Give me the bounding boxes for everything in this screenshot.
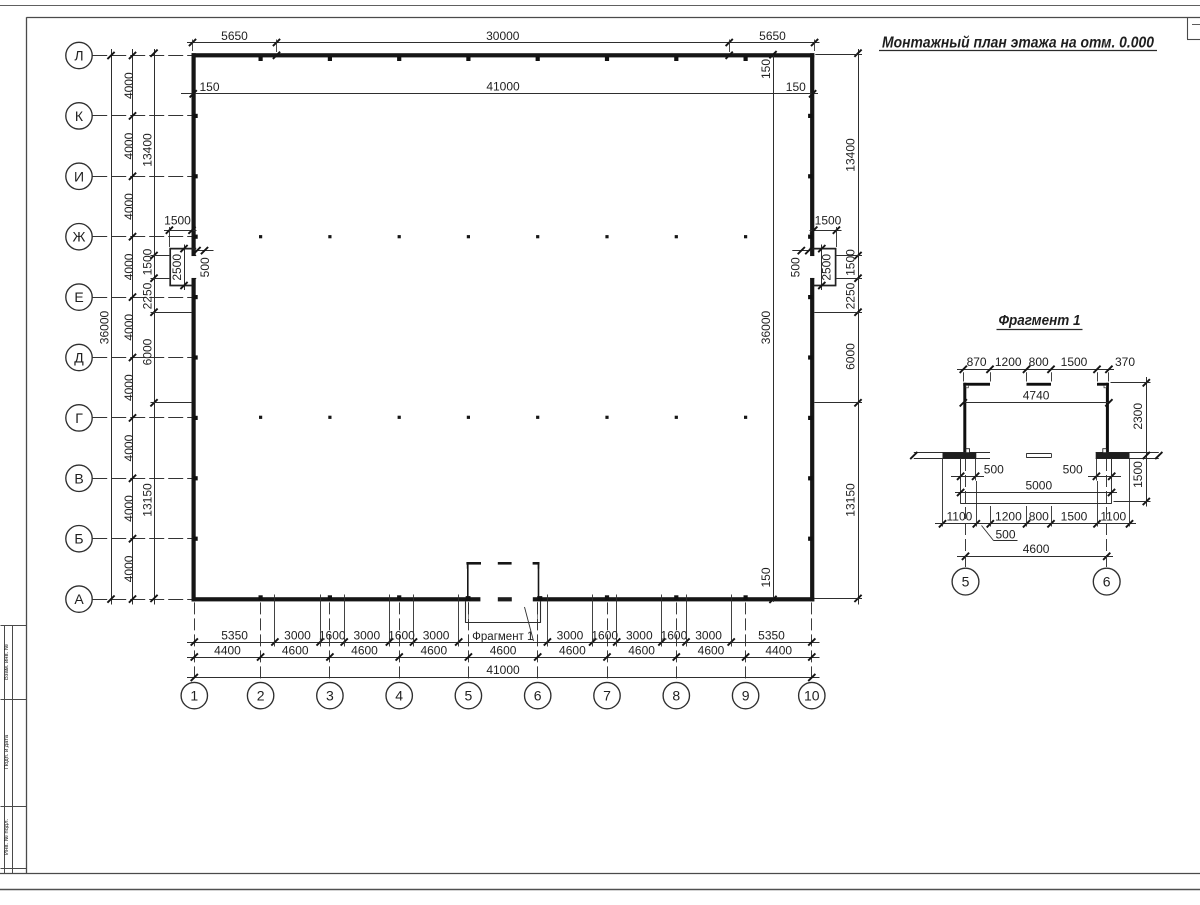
- svg-text:Фрагмент 1: Фрагмент 1: [999, 313, 1081, 329]
- svg-text:3: 3: [326, 688, 334, 704]
- svg-text:8: 8: [672, 688, 680, 704]
- svg-text:5000: 5000: [1025, 478, 1052, 492]
- svg-text:1500: 1500: [1061, 510, 1088, 524]
- svg-text:5650: 5650: [759, 29, 786, 43]
- svg-text:6: 6: [534, 688, 542, 704]
- svg-text:500: 500: [789, 257, 803, 277]
- svg-text:4600: 4600: [282, 643, 309, 657]
- svg-text:1500: 1500: [1131, 461, 1145, 488]
- svg-text:500: 500: [198, 257, 212, 277]
- svg-text:4400: 4400: [214, 643, 241, 657]
- svg-text:41000: 41000: [486, 80, 520, 94]
- svg-text:30000: 30000: [486, 29, 520, 43]
- svg-text:4600: 4600: [559, 643, 586, 657]
- svg-text:150: 150: [759, 59, 773, 79]
- svg-text:3000: 3000: [557, 628, 584, 642]
- svg-text:4600: 4600: [351, 643, 378, 657]
- svg-text:4000: 4000: [122, 132, 136, 159]
- svg-text:5: 5: [465, 688, 473, 704]
- svg-text:1: 1: [190, 688, 198, 704]
- svg-text:1100: 1100: [946, 510, 972, 524]
- svg-text:Е: Е: [74, 289, 83, 305]
- svg-text:150: 150: [759, 567, 773, 587]
- svg-text:Инв. № подл.: Инв. № подл.: [4, 819, 10, 855]
- svg-text:1200: 1200: [995, 355, 1022, 369]
- svg-text:2300: 2300: [1131, 403, 1145, 430]
- svg-text:1500: 1500: [1061, 355, 1088, 369]
- svg-text:1500: 1500: [141, 248, 155, 275]
- svg-text:К: К: [75, 108, 84, 124]
- svg-text:4600: 4600: [628, 643, 655, 657]
- svg-text:870: 870: [967, 355, 987, 369]
- svg-text:800: 800: [1029, 355, 1049, 369]
- svg-text:13150: 13150: [844, 483, 858, 517]
- svg-text:1200: 1200: [995, 510, 1022, 524]
- svg-text:4000: 4000: [122, 193, 136, 220]
- svg-text:4400: 4400: [765, 643, 792, 657]
- svg-text:Подп. и дата: Подп. и дата: [4, 734, 10, 769]
- svg-text:13400: 13400: [141, 133, 155, 167]
- svg-text:Л: Л: [74, 48, 83, 64]
- svg-text:800: 800: [1029, 510, 1049, 524]
- svg-text:3000: 3000: [695, 628, 722, 642]
- svg-text:4600: 4600: [698, 643, 725, 657]
- svg-text:4600: 4600: [1023, 542, 1050, 556]
- svg-text:Д: Д: [74, 350, 84, 366]
- svg-text:Монтажный план этажа на отм. 0: Монтажный план этажа на отм. 0.000: [882, 34, 1154, 51]
- svg-text:36000: 36000: [759, 310, 773, 344]
- svg-text:7: 7: [603, 688, 611, 704]
- svg-text:1500: 1500: [164, 214, 191, 228]
- svg-text:4000: 4000: [122, 253, 136, 280]
- svg-text:4000: 4000: [122, 374, 136, 401]
- svg-text:Взам. инв. №: Взам. инв. №: [4, 644, 10, 680]
- svg-text:1100: 1100: [1100, 510, 1126, 524]
- svg-text:4000: 4000: [122, 434, 136, 461]
- svg-text:5: 5: [962, 574, 970, 590]
- svg-text:6000: 6000: [844, 343, 858, 370]
- svg-text:Ж: Ж: [73, 229, 86, 245]
- svg-text:10: 10: [804, 688, 820, 704]
- svg-text:500: 500: [995, 527, 1015, 541]
- svg-text:1600: 1600: [319, 628, 346, 642]
- svg-text:4000: 4000: [122, 314, 136, 341]
- svg-text:4600: 4600: [420, 643, 447, 657]
- svg-text:370: 370: [1115, 355, 1135, 369]
- svg-text:Б: Б: [74, 531, 83, 547]
- svg-text:13150: 13150: [141, 483, 155, 517]
- svg-text:150: 150: [199, 80, 219, 94]
- svg-text:6000: 6000: [141, 338, 155, 365]
- svg-text:2500: 2500: [170, 254, 184, 281]
- svg-text:41000: 41000: [486, 663, 520, 677]
- svg-text:2250: 2250: [141, 282, 155, 309]
- svg-text:2500: 2500: [820, 254, 834, 281]
- svg-text:1600: 1600: [591, 628, 618, 642]
- svg-text:Г: Г: [75, 410, 83, 426]
- svg-text:4600: 4600: [490, 643, 517, 657]
- svg-text:13400: 13400: [844, 138, 858, 172]
- svg-text:4: 4: [395, 688, 403, 704]
- svg-text:5350: 5350: [221, 628, 248, 642]
- svg-text:1500: 1500: [815, 214, 842, 228]
- svg-text:1500: 1500: [844, 249, 858, 276]
- svg-text:4000: 4000: [122, 555, 136, 582]
- svg-text:В: В: [74, 470, 83, 486]
- svg-text:4740: 4740: [1023, 388, 1050, 402]
- svg-text:36000: 36000: [97, 310, 111, 344]
- svg-text:4000: 4000: [122, 495, 136, 522]
- svg-text:5350: 5350: [758, 628, 785, 642]
- svg-text:3000: 3000: [423, 628, 450, 642]
- svg-text:2250: 2250: [844, 282, 858, 309]
- svg-text:4000: 4000: [122, 72, 136, 99]
- svg-text:150: 150: [786, 80, 806, 94]
- svg-text:1600: 1600: [388, 628, 415, 642]
- svg-text:500: 500: [984, 463, 1004, 477]
- svg-text:500: 500: [1063, 463, 1083, 477]
- svg-text:2: 2: [257, 688, 265, 704]
- svg-text:1600: 1600: [661, 628, 688, 642]
- svg-text:6: 6: [1103, 574, 1111, 590]
- svg-text:3000: 3000: [353, 628, 380, 642]
- svg-text:Фрагмент 1: Фрагмент 1: [472, 631, 533, 643]
- svg-text:И: И: [74, 168, 84, 184]
- svg-text:5650: 5650: [221, 29, 248, 43]
- svg-text:А: А: [74, 591, 84, 607]
- svg-text:3000: 3000: [626, 628, 653, 642]
- svg-text:3000: 3000: [284, 628, 311, 642]
- svg-text:9: 9: [742, 688, 750, 704]
